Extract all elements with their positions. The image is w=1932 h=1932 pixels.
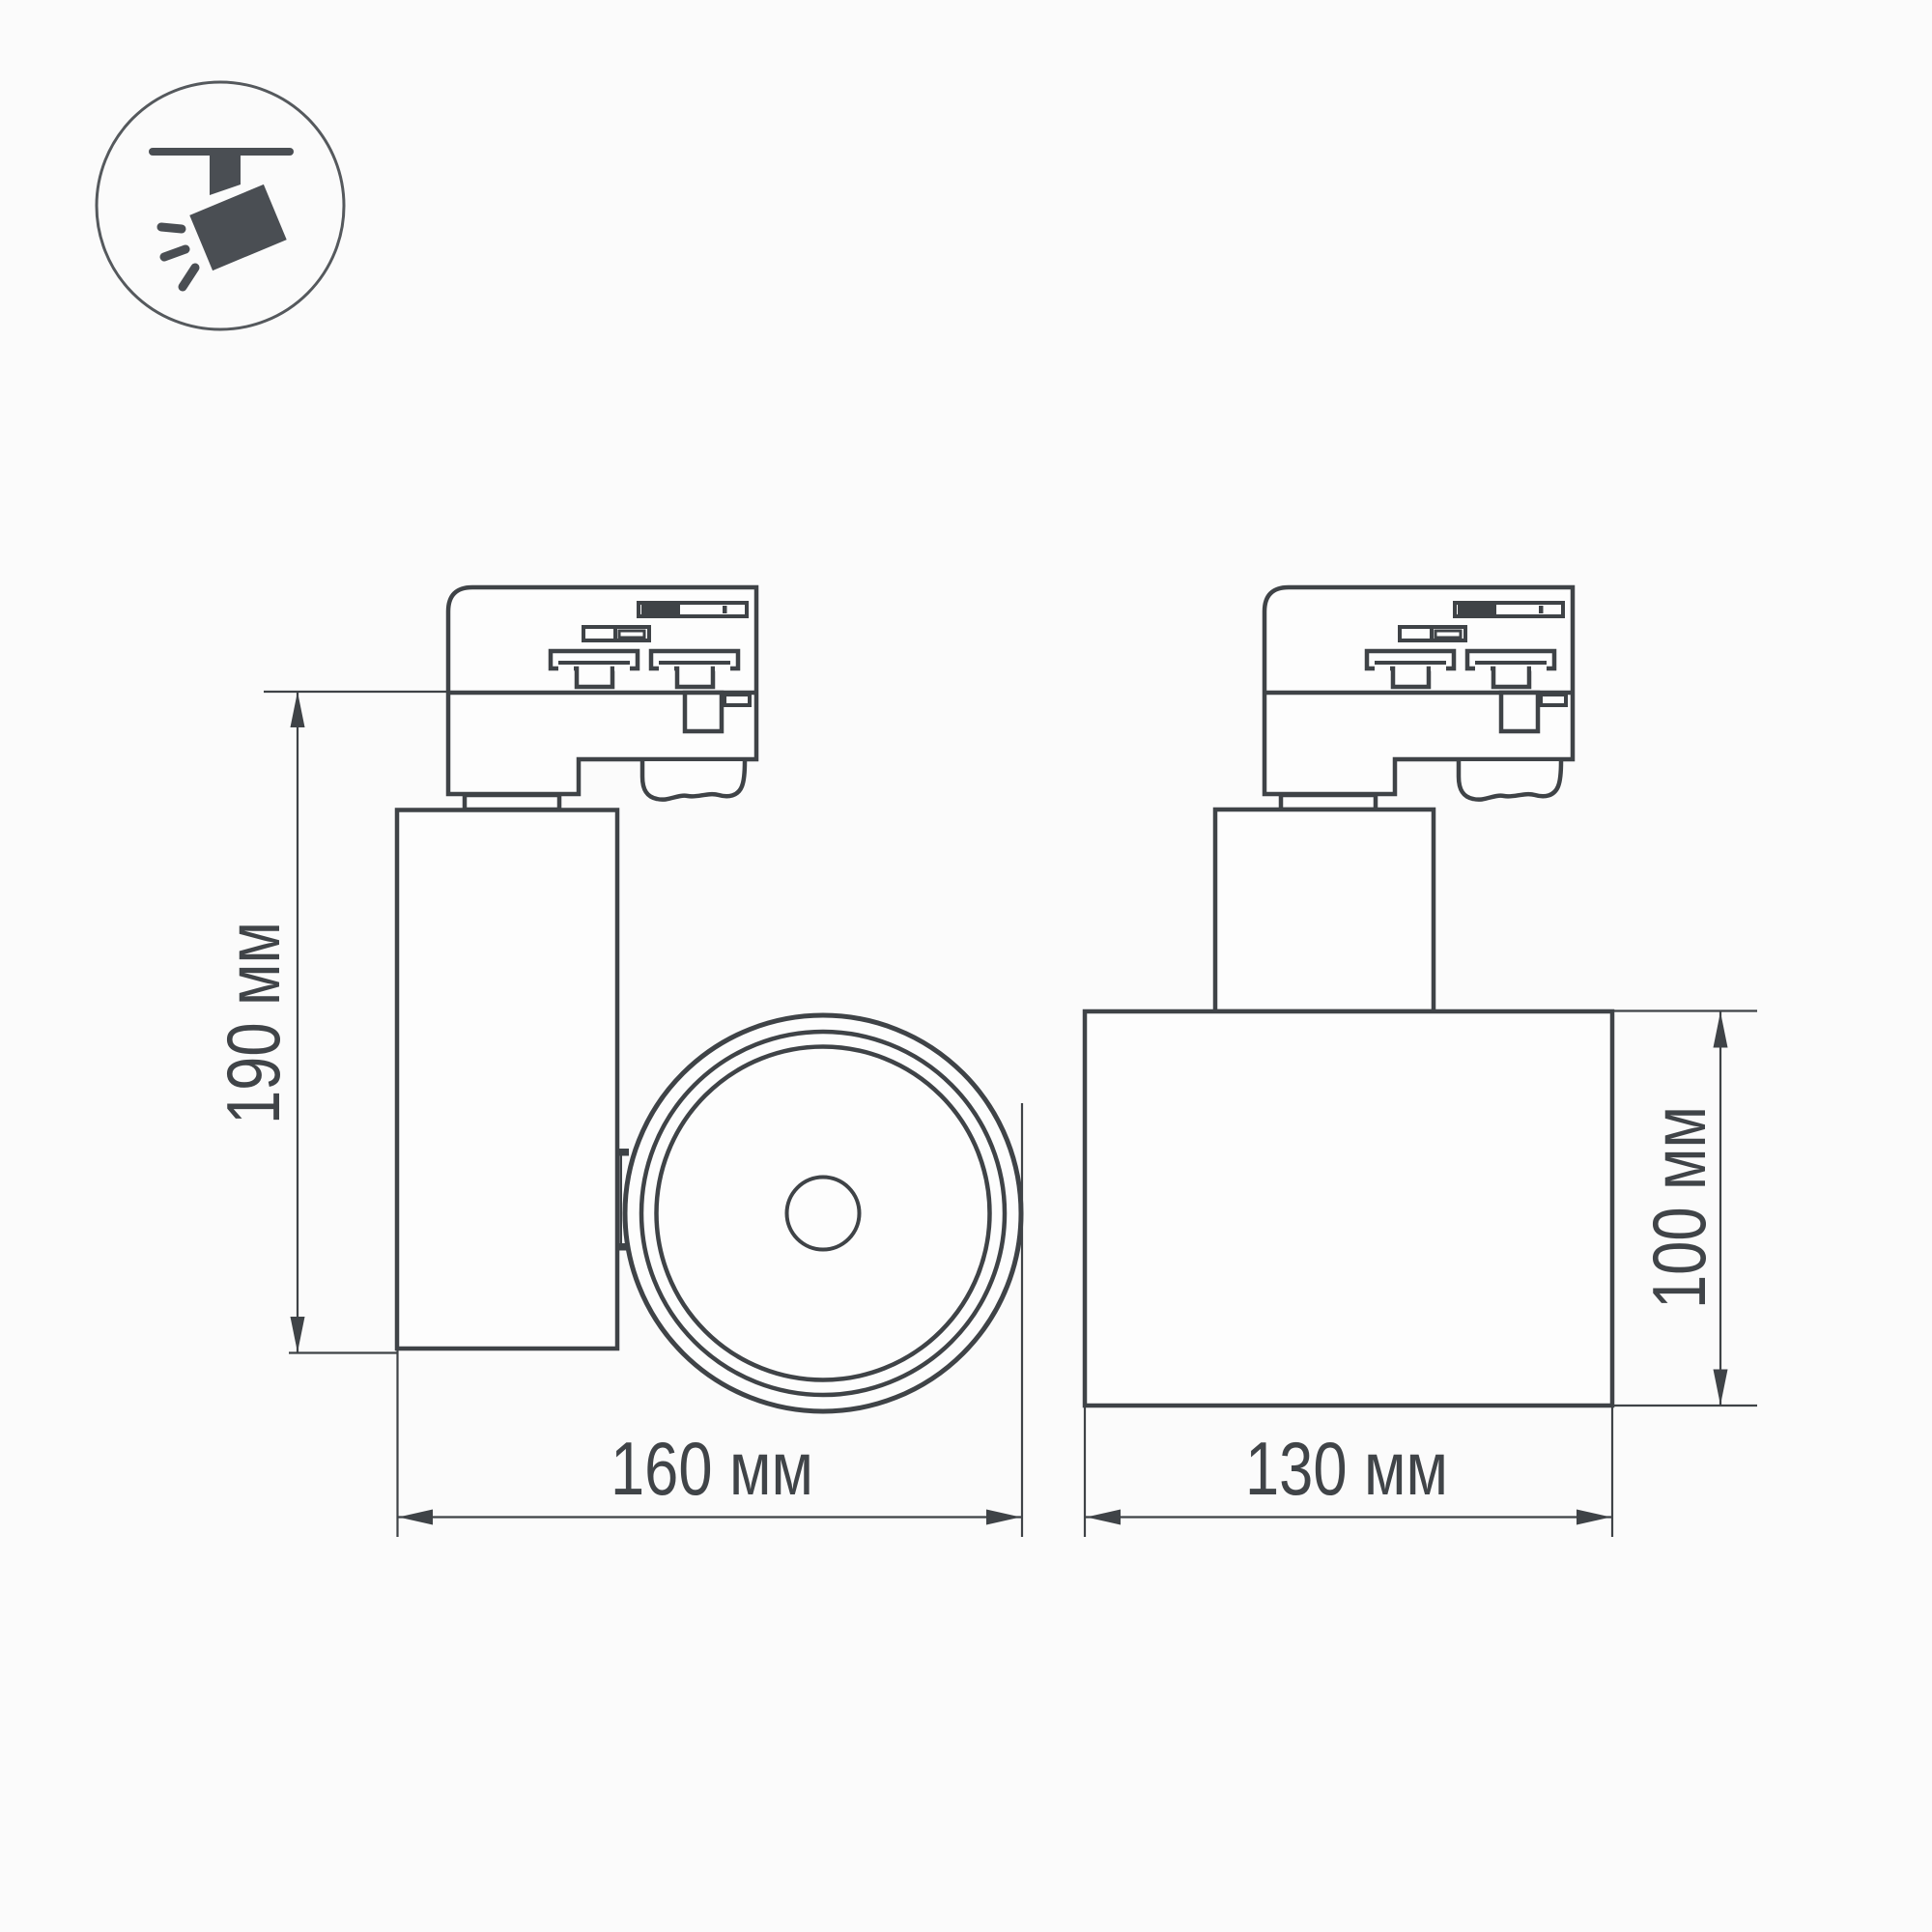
svg-text:130 мм: 130 мм <box>1245 1426 1448 1511</box>
svg-text:190 мм: 190 мм <box>211 922 296 1124</box>
svg-text:100 мм: 100 мм <box>1636 1106 1721 1309</box>
svg-text:160 мм: 160 мм <box>611 1426 813 1511</box>
